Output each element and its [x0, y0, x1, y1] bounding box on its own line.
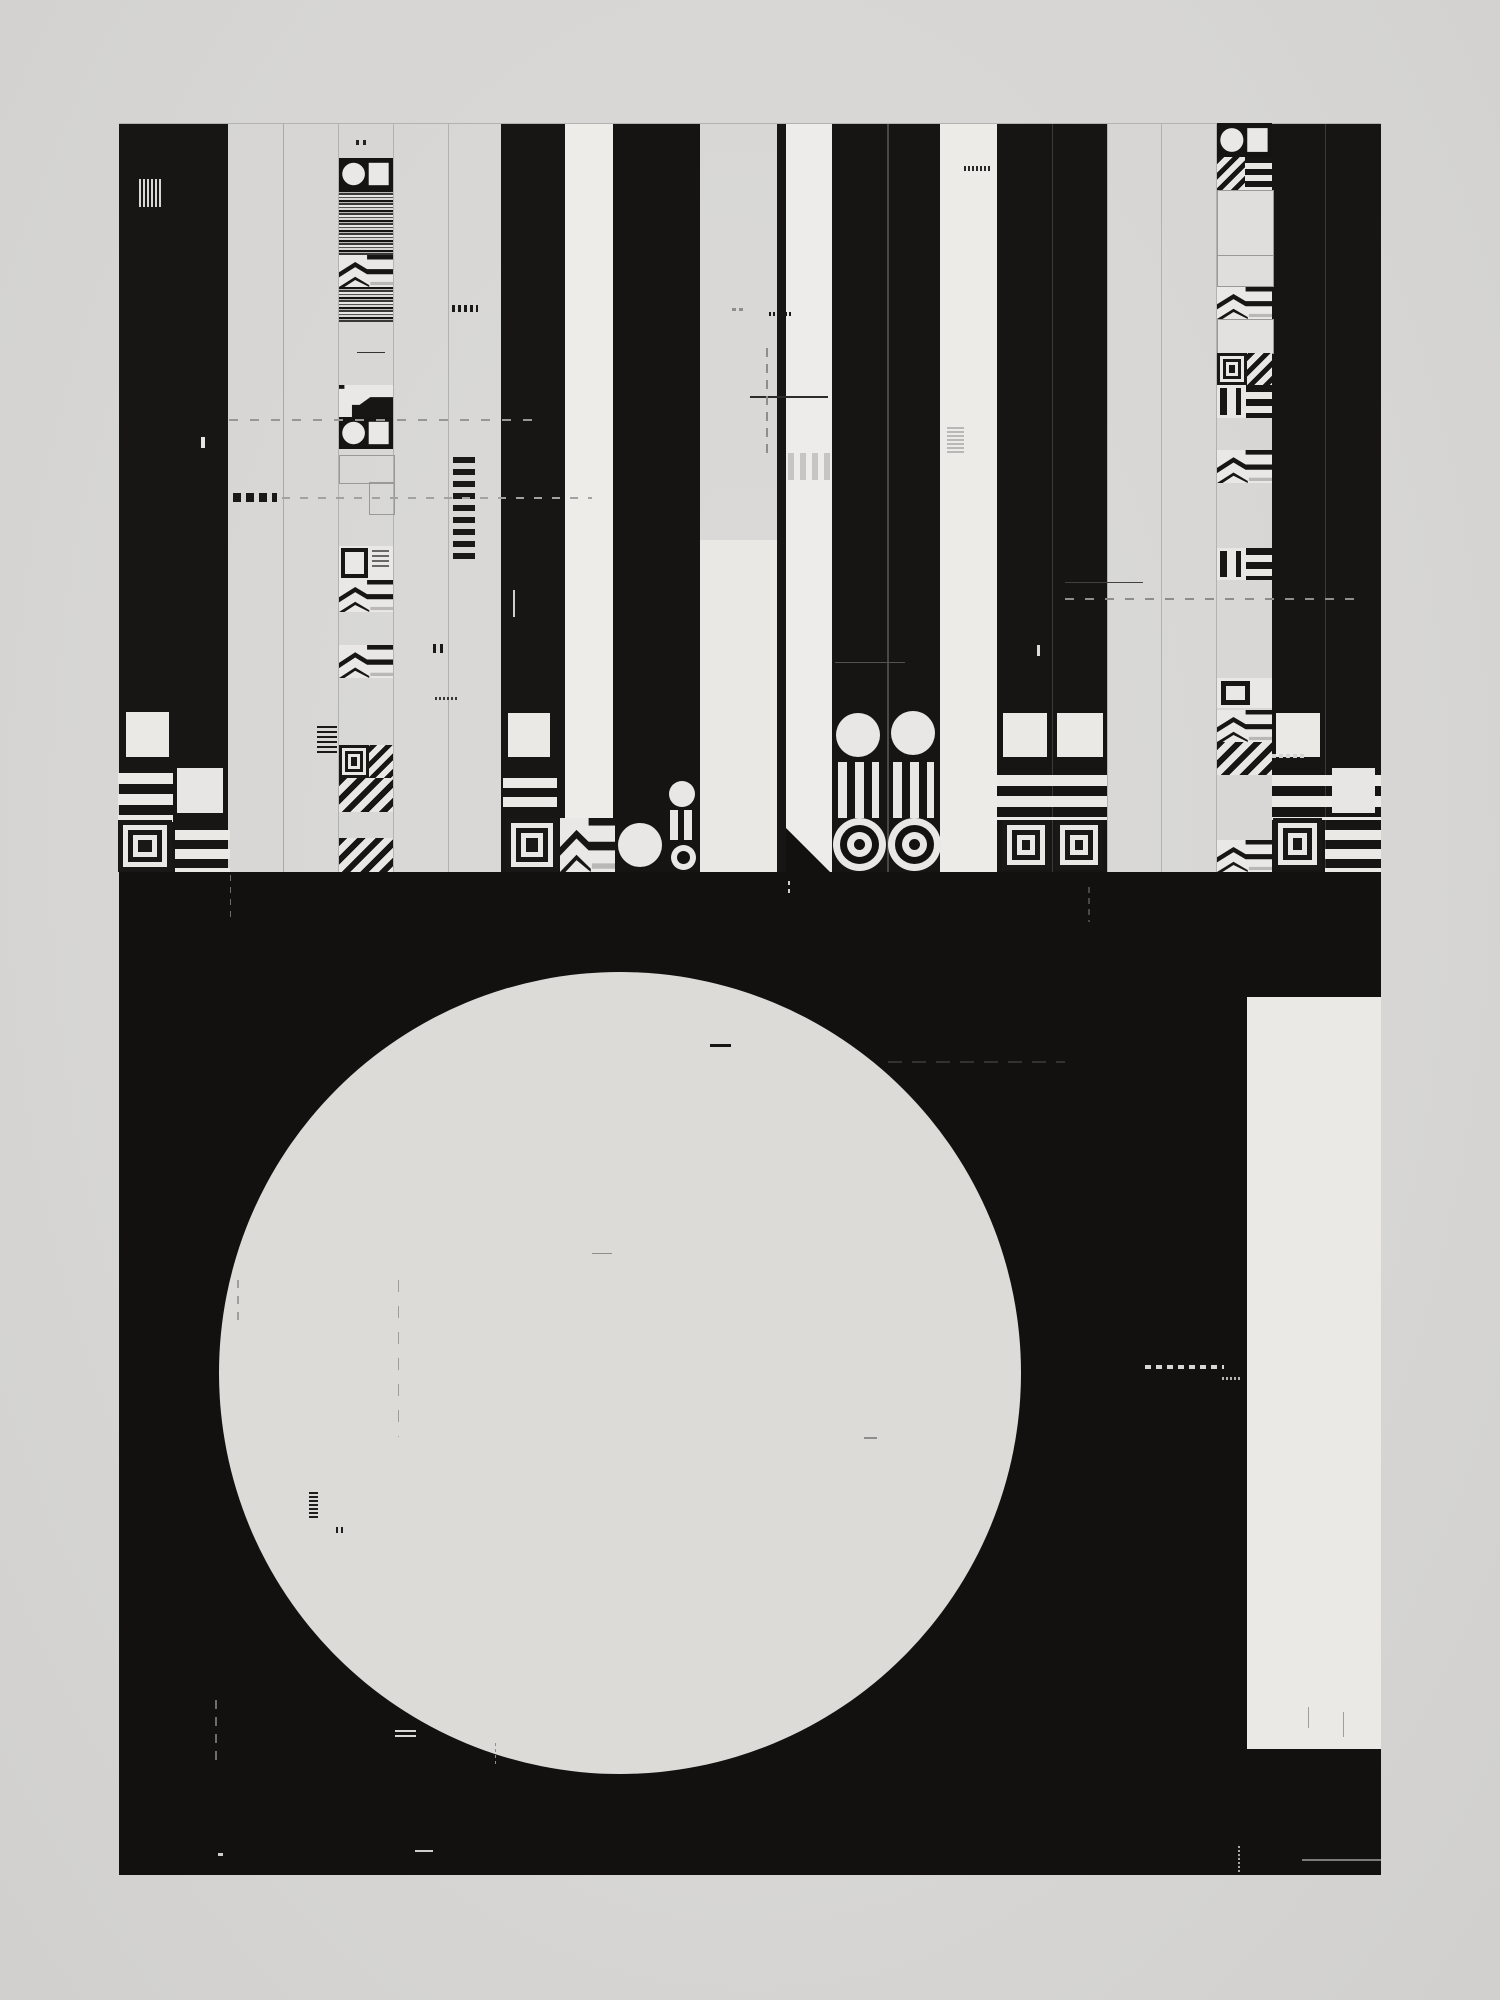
tileA-wedge [339, 385, 393, 417]
tileB-csqdiag-csquare-layer-1 [1220, 356, 1244, 382]
chevron-large [560, 818, 615, 872]
s8-csquare-layer-3 [1288, 833, 1307, 855]
b-dash-white-row [1145, 1365, 1224, 1369]
tick-white-3 [513, 590, 515, 617]
dotrow-1b [732, 308, 746, 311]
b-tick-1 [218, 1853, 223, 1856]
tick-black-1 [433, 644, 445, 653]
s3-circle [618, 823, 662, 867]
c-ladder [309, 1492, 318, 1519]
tileA-noise-1 [339, 190, 393, 255]
tileA-csqdiag-csquare-layer-1 [342, 748, 366, 775]
tileB-barsmix-1-hbars [1246, 385, 1272, 418]
dash-v-1 [766, 348, 768, 453]
s5-bullseye-2-layer-3 [909, 839, 920, 850]
s7-csquare-1-layer-4 [1022, 840, 1030, 850]
s5-bullseye-1 [833, 818, 886, 871]
s8-csquare [1273, 818, 1322, 870]
s3-ring [671, 845, 696, 870]
line-h-3 [835, 662, 905, 663]
s8-stripes-2 [1325, 830, 1381, 872]
tileB-sqframe-frame [1221, 681, 1250, 705]
tileB-barsmix-2 [1217, 548, 1272, 580]
tileB-diagh-bars [1245, 157, 1273, 190]
s1-square-1 [126, 712, 169, 757]
tileA-circsq-2 [339, 417, 393, 449]
stripe-white-1 [565, 123, 613, 818]
line-h-2 [1065, 582, 1143, 583]
s2-square [508, 713, 550, 757]
s8-square-1 [1276, 713, 1320, 757]
s1-csquare-layer-4 [138, 840, 152, 852]
s7-csquare-2-layer-3 [1070, 835, 1088, 855]
c-dashv-1 [237, 1280, 239, 1327]
tileB-box-1 [1217, 190, 1274, 257]
s2-csquare-layer-1 [511, 823, 553, 867]
s2-csquare-layer-4 [526, 838, 538, 852]
s2-csquare-layer-2 [516, 828, 548, 862]
tileB-diagh [1217, 157, 1272, 190]
artwork-top-edge [119, 123, 1381, 124]
tileB-diagh-diag [1217, 157, 1245, 190]
seam-f [1161, 123, 1162, 872]
ladder-2 [317, 726, 337, 753]
stripe-white-3 [786, 123, 832, 872]
s8-csquare-layer-1 [1278, 823, 1317, 865]
s5-bars-2 [893, 762, 934, 818]
s5-circle-2 [891, 711, 935, 755]
stripe-white-4 [940, 123, 997, 872]
tileB-chevron-1 [1217, 287, 1272, 319]
c-dashv-2 [398, 1280, 399, 1437]
tileA-dstripes-1 [339, 778, 393, 812]
hatchpatch-1 [947, 427, 964, 453]
tileA-csqdiag-csquare-layer-4 [351, 757, 357, 766]
tileB-box-2 [1217, 255, 1274, 287]
b-tick-2 [864, 1437, 877, 1439]
stripe-black-6 [1272, 123, 1381, 872]
tileB-csqdiag [1217, 353, 1272, 385]
c-dash-2 [710, 1044, 731, 1047]
tileA-csqdiag [339, 745, 393, 778]
b-dashv-4 [1088, 887, 1090, 922]
tileA-box-1 [339, 455, 395, 484]
s5-bullseye-2-layer-1 [895, 825, 934, 864]
tick-white-1 [201, 437, 205, 448]
s8-csquare-layer-2 [1283, 828, 1312, 860]
dotrow-1 [769, 312, 791, 316]
s1-stripes [118, 773, 173, 822]
tileB-csqdiag-csquare-layer-4 [1229, 365, 1235, 373]
page: { "palette": { "background": "#d7d6d4", … [0, 0, 1500, 2000]
stripe-seam-1 [1052, 123, 1053, 872]
stripe-white-2 [700, 540, 778, 872]
sqrow [233, 493, 277, 502]
r-dotv [495, 1743, 496, 1766]
tileB-chevron-3 [1217, 710, 1272, 742]
stripe-black-thin [777, 123, 786, 872]
stripe-seam-2 [1325, 123, 1326, 872]
tileA-dots [356, 140, 370, 145]
s5-bullseye-1-layer-1 [840, 825, 879, 864]
stripe-black-1 [119, 123, 228, 872]
r-line-1 [1308, 1707, 1309, 1728]
b-dashv-2 [788, 881, 790, 897]
s5-bullseye-2 [888, 818, 941, 871]
s1-stripes-2 [175, 830, 230, 872]
s7-square-1 [1003, 713, 1047, 757]
b-dashv-1 [215, 1700, 217, 1764]
s7-csquare-2 [1055, 820, 1103, 870]
s7-stripes [997, 775, 1107, 820]
s5-bullseye-1-layer-2 [847, 832, 872, 857]
r-line-2 [1343, 1712, 1344, 1737]
tileB-csqdiag-csquare-layer-2 [1223, 359, 1241, 379]
s5-bullseye-1-layer-3 [854, 839, 865, 850]
tileB-barsmix-1 [1217, 385, 1272, 418]
c-ticks [336, 1527, 345, 1533]
tileB-sqframe [1217, 678, 1272, 708]
tileB-barsmix-1-vbars [1220, 388, 1241, 416]
s7-csquare-2-layer-1 [1060, 825, 1098, 865]
tileA-dash [357, 352, 385, 353]
seam-e [1107, 123, 1108, 872]
tileA-csqdiag-csquare [339, 745, 369, 778]
tileA-csqdiag-csquare-layer-3 [348, 754, 360, 769]
b-dash-1 [415, 1850, 433, 1852]
ladder-1 [453, 457, 475, 563]
tileA-chevron-2 [339, 580, 393, 612]
tileA-chevron-3 [339, 645, 393, 678]
s7-csquare-2-layer-2 [1065, 830, 1093, 860]
hatch-white [139, 179, 161, 207]
tileB-barsmix-2-vbars [1220, 551, 1241, 578]
tileA-circsq-1 [339, 158, 393, 190]
tileB-csqdiag-csquare [1217, 353, 1247, 385]
tileA-dstripes-2 [339, 838, 393, 872]
tileA-chevron-1 [339, 255, 393, 287]
s5-bullseye-2-layer-2 [902, 832, 927, 857]
tileA-noise-2 [339, 287, 393, 322]
tileB-csqdiag-csquare-layer-3 [1226, 362, 1238, 376]
s2-csquare-layer-3 [521, 833, 543, 857]
dotrow-2 [964, 166, 990, 171]
s7-csquare-1-layer-3 [1017, 835, 1035, 855]
s7-csquare-1-layer-1 [1007, 825, 1045, 865]
s2-stripes [503, 778, 557, 813]
b-dashv-3 [230, 875, 231, 920]
s1-csquare [118, 820, 172, 872]
stripe-black-4b [889, 123, 940, 872]
b-dotv-1 [1238, 1846, 1240, 1874]
tileB-chevron-4 [1217, 840, 1272, 872]
s8-dashrow [1272, 754, 1304, 758]
tileB-barsmix-2-hbars [1246, 548, 1272, 580]
b-line-1 [1302, 1859, 1381, 1861]
s3-bars [670, 810, 693, 840]
s7-square-2 [1057, 713, 1103, 757]
tileB-chevron-2 [1217, 450, 1272, 483]
white-rect [1247, 997, 1381, 1749]
tileA-sqlined-square [341, 548, 368, 578]
graybars-1 [788, 453, 830, 480]
dash-h-2 [282, 497, 592, 499]
big-circle [219, 972, 1021, 1774]
s3-ring-layer-1 [677, 851, 690, 864]
s1-csquare-layer-2 [128, 830, 162, 862]
s7-csquare-1 [1002, 820, 1050, 870]
b-dotrow [1222, 1377, 1242, 1380]
line-h-1 [750, 396, 828, 398]
s5-circle-1 [836, 713, 880, 757]
tick-white-2 [1037, 645, 1040, 656]
s7-csquare-1-layer-2 [1012, 830, 1040, 860]
s1-square-2 [177, 768, 223, 813]
tickrow-1 [452, 305, 478, 312]
dotrow-3 [435, 697, 457, 700]
b-dash-h [888, 1061, 1065, 1063]
s1-csquare-layer-3 [133, 835, 157, 857]
s8-square-2 [1332, 768, 1375, 813]
s2-csquare [506, 818, 558, 872]
tileA-csqdiag-csquare-layer-2 [345, 751, 363, 772]
tileB-dstripes [1217, 742, 1272, 775]
stripe-black-4a [832, 123, 887, 872]
b-equals [395, 1730, 416, 1738]
s1-csquare-layer-1 [123, 825, 167, 867]
tileA-sqlined-lines [372, 550, 388, 569]
dash-h-3 [1065, 598, 1363, 600]
dash-h-1 [229, 419, 537, 421]
tileB-box-3 [1217, 319, 1274, 354]
c-dash-1 [592, 1253, 612, 1254]
s3-smallcircle [669, 781, 695, 807]
tileB-circsq [1217, 123, 1272, 157]
s7-csquare-2-layer-4 [1075, 840, 1083, 850]
s5-bars-1 [838, 762, 879, 818]
s8-csquare-layer-4 [1293, 838, 1302, 850]
tileA-sqlined [339, 546, 393, 580]
white3-corner-cut [786, 828, 830, 872]
poster-canvas [0, 0, 1500, 2000]
stripe-black-3 [613, 123, 700, 872]
